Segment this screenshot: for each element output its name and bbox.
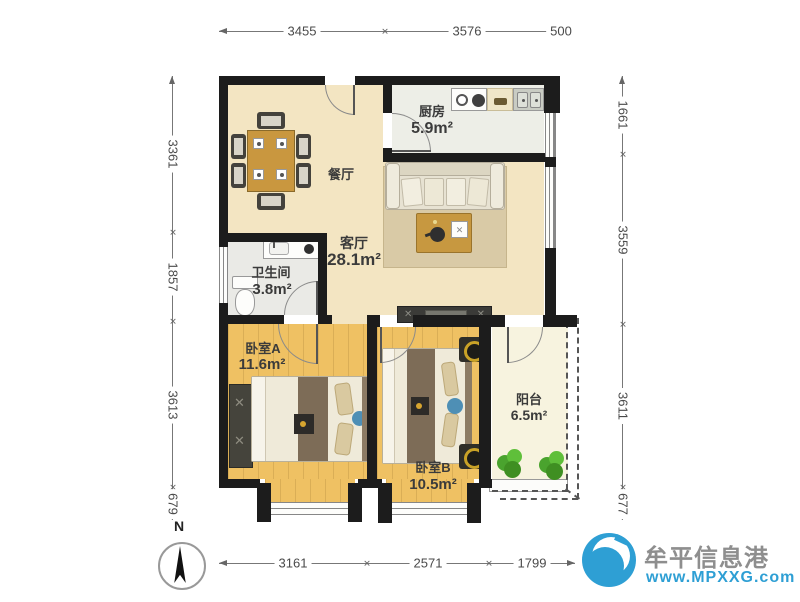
dining-chair bbox=[296, 163, 311, 188]
wall-segment bbox=[383, 85, 392, 113]
bathroom-door-leaf bbox=[316, 281, 318, 315]
bed-accent bbox=[411, 397, 429, 415]
counter-item bbox=[494, 98, 507, 105]
balcony-dashed-line bbox=[492, 490, 568, 492]
dim-tick: ✕ bbox=[381, 27, 389, 38]
window bbox=[392, 502, 467, 515]
wall-segment bbox=[367, 315, 380, 327]
window bbox=[545, 113, 556, 157]
balcony-dashed-line bbox=[500, 498, 578, 500]
room-label-bedroomB: 卧室B bbox=[415, 457, 450, 476]
dining-chair bbox=[231, 163, 246, 188]
dim-tick: ✕ bbox=[619, 150, 627, 161]
bedA bbox=[251, 376, 369, 462]
wall-segment bbox=[367, 324, 377, 482]
wall-segment bbox=[257, 483, 271, 522]
sofa-armrest-left bbox=[386, 163, 400, 209]
round-sink bbox=[304, 244, 314, 254]
window bbox=[271, 502, 348, 515]
room-label-balcony: 阳台 bbox=[516, 389, 542, 408]
wall-segment bbox=[545, 157, 556, 167]
burner bbox=[472, 94, 485, 107]
wall-segment bbox=[348, 483, 362, 522]
sink-basin bbox=[530, 92, 541, 108]
bedroomA-door-leaf bbox=[316, 324, 318, 364]
compass: N bbox=[150, 518, 220, 593]
wall-segment bbox=[545, 248, 556, 327]
sofa-back bbox=[400, 163, 492, 176]
dim-tick: ✕ bbox=[169, 317, 177, 328]
room-label-bathroom: 卫生间 bbox=[251, 262, 290, 281]
dining-chair bbox=[296, 134, 311, 159]
dining-chair bbox=[257, 193, 285, 210]
compass-label: N bbox=[174, 518, 184, 534]
window bbox=[219, 247, 228, 303]
dim-arrow bbox=[619, 76, 625, 84]
dim-value: 1857 bbox=[166, 259, 181, 296]
dining-chair bbox=[231, 134, 246, 159]
wall-segment bbox=[219, 303, 228, 488]
dim-value: 3613 bbox=[166, 387, 181, 424]
dim-value: 677 bbox=[616, 489, 631, 519]
room-label-bedroomA: 卧室A bbox=[245, 338, 280, 357]
wall-segment bbox=[219, 76, 228, 247]
bed-fold bbox=[252, 377, 266, 461]
dim-arrow bbox=[169, 76, 175, 84]
bed-fold bbox=[383, 349, 395, 463]
balcony-dashed-line bbox=[566, 322, 568, 490]
kitchen-door-leaf bbox=[392, 150, 431, 152]
wall-segment bbox=[219, 479, 260, 488]
watermark-site-name: 牟平信息港 bbox=[644, 538, 769, 573]
sofa-cushion bbox=[424, 178, 444, 206]
dim-value: 679 bbox=[166, 489, 181, 519]
dim-value: 1661 bbox=[616, 97, 631, 134]
wall-segment bbox=[383, 153, 556, 162]
dining-table bbox=[247, 130, 295, 192]
sofa-cushion bbox=[401, 177, 424, 207]
sofa-cushion bbox=[467, 177, 490, 207]
wall-segment bbox=[219, 315, 284, 324]
plate bbox=[253, 138, 264, 149]
dim-value: 3361 bbox=[166, 136, 181, 173]
coffee-table: ✕ bbox=[416, 213, 472, 253]
wall-segment bbox=[467, 483, 481, 523]
dim-arrow bbox=[219, 28, 227, 34]
room-area-kitchen: 5.9m² bbox=[411, 120, 453, 138]
dim-value: 3559 bbox=[616, 222, 631, 259]
plate bbox=[276, 138, 287, 149]
bed-decor bbox=[447, 398, 463, 414]
plant bbox=[495, 447, 525, 479]
sofa-armrest-right bbox=[490, 163, 504, 209]
wall-segment bbox=[219, 76, 325, 85]
dim-value: 1799 bbox=[514, 556, 551, 571]
watermark: 牟平信息港 www.MPXXG.com bbox=[580, 531, 795, 595]
bed-accent bbox=[294, 414, 314, 434]
dim-value: 2571 bbox=[410, 556, 447, 571]
wardrobe: ✕ ✕ bbox=[229, 384, 253, 468]
dim-value: 3161 bbox=[275, 556, 312, 571]
room-label-dining: 餐厅 bbox=[328, 164, 354, 183]
pillow bbox=[441, 412, 460, 448]
wall-segment bbox=[544, 76, 560, 113]
dim-tick: ✕ bbox=[485, 559, 493, 570]
sink bbox=[513, 88, 544, 111]
basin bbox=[269, 242, 289, 255]
dim-arrow bbox=[567, 560, 575, 566]
watermark-url: www.MPXXG.com bbox=[646, 569, 795, 587]
sofa-cushion bbox=[446, 178, 466, 206]
pillow bbox=[441, 361, 460, 397]
dining-chair bbox=[257, 112, 285, 129]
window bbox=[545, 167, 556, 248]
dim-tick: ✕ bbox=[619, 320, 627, 331]
sofa bbox=[385, 162, 505, 210]
burner bbox=[456, 94, 468, 106]
balcony-door-leaf bbox=[507, 327, 509, 363]
wall-segment bbox=[378, 483, 392, 523]
room-area-bathroom: 3.8m² bbox=[252, 281, 291, 298]
dim-value: 3611 bbox=[616, 388, 631, 424]
watermark-logo-icon bbox=[582, 533, 636, 587]
wall-segment bbox=[413, 315, 505, 327]
dim-tick: ✕ bbox=[363, 559, 371, 570]
room-area-living: 28.1m² bbox=[327, 250, 381, 270]
dim-arrow bbox=[219, 560, 227, 566]
stove bbox=[451, 88, 487, 111]
plant bbox=[537, 449, 567, 481]
kitchen-counter bbox=[487, 88, 513, 111]
dim-value: 500 bbox=[546, 24, 576, 39]
dim-line-top bbox=[219, 31, 575, 32]
bedroomB-door-leaf bbox=[380, 327, 382, 363]
plate bbox=[276, 169, 287, 180]
sink-basin bbox=[517, 92, 528, 108]
dim-value: 3455 bbox=[284, 24, 321, 39]
room-label-kitchen: 厨房 bbox=[419, 101, 445, 120]
dim-tick: ✕ bbox=[169, 228, 177, 239]
dim-value: 3576 bbox=[449, 24, 486, 39]
wall-segment bbox=[219, 233, 327, 242]
table-dot bbox=[433, 220, 437, 224]
dim-line-right bbox=[622, 76, 623, 520]
plate bbox=[253, 169, 264, 180]
tray: ✕ bbox=[451, 221, 468, 238]
hall-passage-floor bbox=[332, 315, 367, 324]
wall-segment bbox=[479, 324, 491, 484]
floor-plan: ✕ ✕ ✕ ✕ ✕ bbox=[0, 0, 800, 602]
pillow bbox=[334, 382, 354, 416]
room-area-balcony: 6.5m² bbox=[511, 407, 548, 423]
bedroomA-bay-floor bbox=[265, 479, 355, 504]
entry-door-leaf bbox=[353, 85, 355, 115]
wall-segment bbox=[355, 76, 560, 85]
balcony-dashed-line bbox=[577, 318, 579, 499]
wall-segment bbox=[318, 233, 327, 324]
pillow bbox=[334, 422, 354, 456]
room-area-bedroomA: 11.6m² bbox=[239, 356, 286, 373]
room-area-bedroomB: 10.5m² bbox=[409, 476, 457, 493]
